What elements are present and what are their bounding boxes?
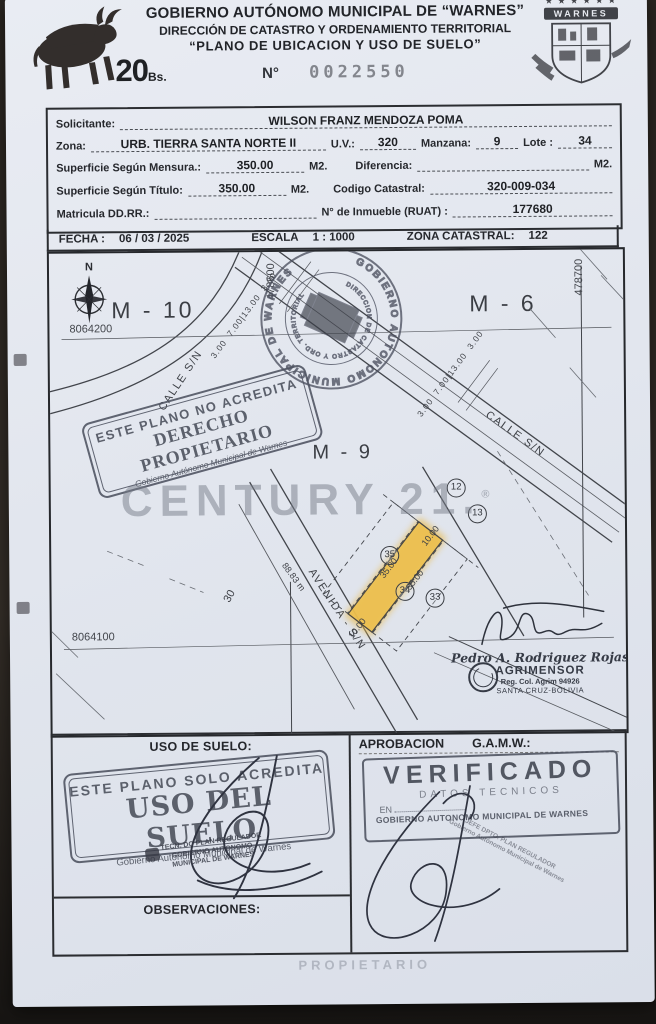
cadastral-form: Solicitante: WILSON FRANZ MENDOZA POMA Z…: [46, 103, 623, 234]
lote-label: Lote :: [523, 137, 553, 149]
ruat-label: N° de Inmueble (RUAT) :: [321, 206, 448, 219]
photo-of-document: { "header": { "line1": "GOBIERNO AUTÓNOM…: [0, 0, 656, 1024]
zona-label: Zona:: [56, 140, 86, 152]
diferencia-value: [417, 156, 589, 171]
scanned-plan-document: 20Bs. GOBIERNO AUTÓNOMO MUNICIPAL DE “WA…: [5, 0, 655, 1007]
official-signature-left: [161, 752, 332, 903]
sup-titulo-label: Superficie Según Título:: [56, 185, 183, 198]
margin-stamp-icon: [17, 602, 30, 614]
zona-catastral-value: 122: [528, 230, 547, 242]
aprobacion-org: G.A.M.W.:: [472, 736, 530, 750]
warnes-coat-of-arms: ★ ★ ★ ★ ★ ★ WARNES: [529, 0, 634, 90]
m2-label-3: M2.: [291, 184, 309, 196]
zona-catastral-label: ZONA CATASTRAL:: [407, 230, 515, 243]
surveyor-college-seal-icon: [468, 662, 498, 692]
form-row-matricula: Matricula DD.RR.: N° de Inmueble (RUAT) …: [56, 201, 612, 220]
crest-stars-icon: ★ ★ ★ ★ ★ ★: [529, 0, 633, 7]
matricula-value: [154, 205, 316, 220]
matricula-label: Matricula DD.RR.:: [56, 208, 149, 221]
watermark-text: CENTURY 21.: [121, 474, 482, 526]
codigo-catastral-value: 320-009-034: [430, 178, 613, 194]
folio-number-value: 0022550: [309, 62, 409, 83]
manzana-label: Manzana:: [421, 137, 471, 149]
m2-label: M2.: [309, 161, 327, 173]
codigo-catastral-label: Codigo Catastral:: [333, 183, 425, 196]
bleed-through-text: PROPIETARIO: [298, 957, 431, 973]
uv-label: U.V.:: [331, 138, 355, 150]
north-compass-icon: N: [67, 261, 112, 325]
solicitante-value: WILSON FRANZ MENDOZA POMA: [120, 111, 612, 130]
form-row-solicitante: Solicitante: WILSON FRANZ MENDOZA POMA: [56, 111, 612, 130]
observaciones-section: OBSERVACIONES:: [54, 894, 350, 954]
surveyor-signature: [478, 601, 608, 652]
ruat-value: 177680: [453, 201, 613, 217]
form-row-titulo: Superficie Según Título: 350.00 M2. Codi…: [56, 178, 612, 197]
m2-label-2: M2.: [594, 158, 612, 170]
fecha-label: FECHA :: [59, 233, 105, 245]
aprobacion-section: APROBACION G.A.M.W.: VERIFICADO DATOS TE…: [351, 731, 627, 952]
crest-banner: WARNES: [544, 7, 618, 20]
margin-stamp-icon: [14, 354, 27, 366]
century21-watermark: CENTURY 21.®: [121, 473, 591, 527]
fecha-value: 06 / 03 / 2025: [119, 233, 189, 246]
header-line3: “PLANO DE UBICACION Y USO DE SUELO”: [133, 36, 537, 55]
solicitante-label: Solicitante:: [56, 118, 115, 130]
diferencia-label: Diferencia:: [355, 160, 412, 172]
footer-sections: USO DE SUELO: ESTE PLANO SOLO ACREDITA U…: [51, 729, 629, 957]
uv-value: 320: [360, 135, 416, 150]
sup-mensura-value: 350.00: [206, 158, 304, 174]
sup-titulo-value: 350.00: [188, 181, 286, 197]
escala-label: ESCALA: [251, 232, 298, 244]
form-row-mensura: Superficie Según Mensura.: 350.00 M2. Di…: [56, 155, 612, 174]
uso-de-suelo-section: USO DE SUELO: ESTE PLANO SOLO ACREDITA U…: [53, 733, 353, 954]
mini-shield-icon: [145, 847, 161, 862]
manzana-value: 9: [476, 134, 518, 149]
surveyor-signature-block: Pedro A. Rodriguez Rojas AGRIMENSOR Reg.…: [450, 609, 629, 695]
sup-mensura-label: Superficie Según Mensura.:: [56, 162, 201, 175]
escala-value: 1 : 1000: [313, 231, 355, 243]
folio-number-row: N° 0022550: [133, 61, 537, 85]
lote-value: 34: [558, 133, 612, 148]
location-map: N M - 10 M - 6 M - 9 8064200 8064100 478…: [47, 247, 629, 738]
document-header: GOBIERNO AUTÓNOMO MUNICIPAL DE “WARNES” …: [133, 2, 538, 85]
north-label: N: [67, 261, 111, 273]
registered-mark-icon: ®: [481, 489, 489, 501]
crest-shield-icon: [529, 19, 634, 90]
folio-number-label: N°: [262, 65, 279, 82]
lot-number-33: 33: [425, 589, 444, 608]
form-row-zona: Zona: URB. TIERRA SANTA NORTE II U.V.: 3…: [56, 133, 612, 152]
zona-value: URB. TIERRA SANTA NORTE II: [91, 136, 326, 153]
aprobacion-label: APROBACION: [359, 737, 445, 752]
